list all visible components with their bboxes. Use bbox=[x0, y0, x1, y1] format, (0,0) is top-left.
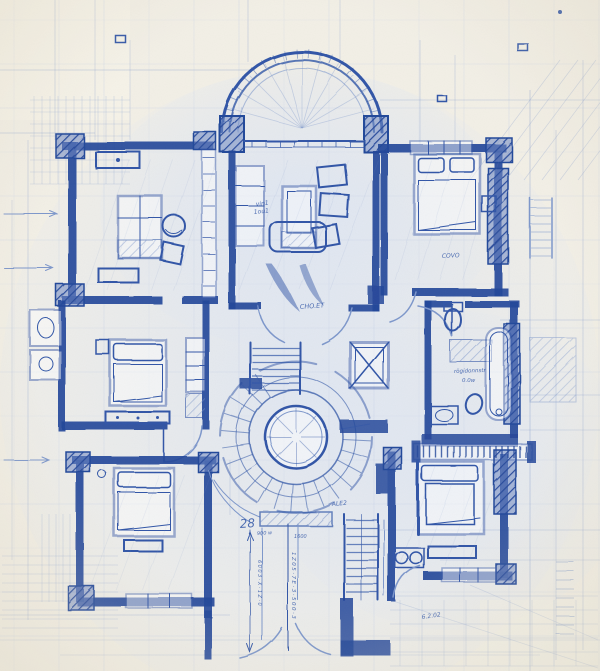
floor-plan-drawing: vin1 1ou1 CHO.ET COVO rögidonnstr 0.0w A… bbox=[0, 0, 600, 671]
blueprint-page: vin1 1ou1 CHO.ET COVO rögidonnstr 0.0w A… bbox=[0, 0, 600, 671]
vignette bbox=[0, 0, 600, 671]
